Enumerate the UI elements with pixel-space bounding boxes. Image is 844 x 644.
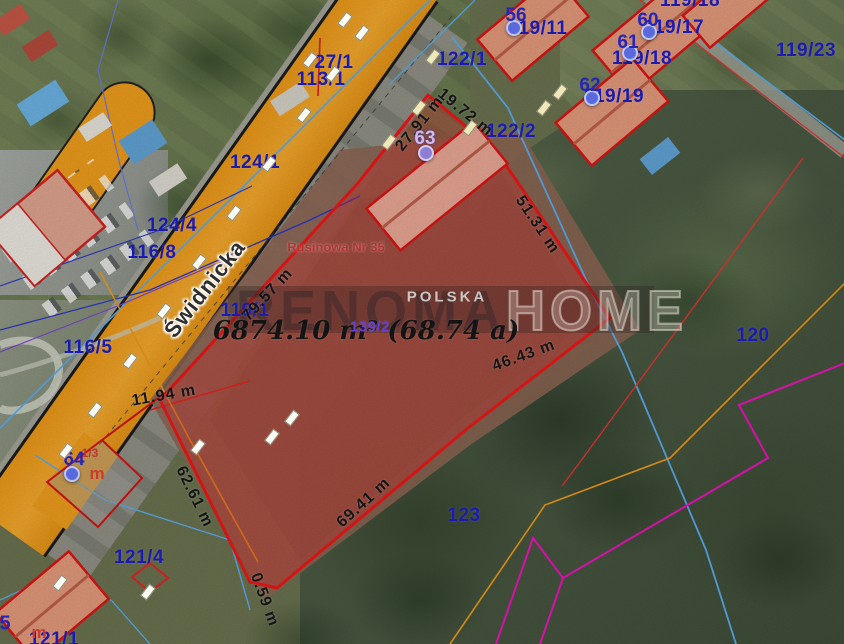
address-number-label: 62 bbox=[579, 75, 600, 97]
street-address-label: Rusinowa Nr 35 bbox=[287, 240, 385, 255]
parcel-number-label: 119/23 bbox=[776, 40, 836, 62]
survey-tag bbox=[354, 25, 370, 42]
parcel-number-label: 123 bbox=[447, 505, 480, 527]
address-number-label: 56 bbox=[505, 5, 526, 27]
parcel-number-label: 119/18 bbox=[660, 0, 720, 12]
edge-measurement-label: 69.41 m bbox=[334, 474, 395, 531]
parcel-number-label: 139/2 bbox=[350, 319, 390, 336]
survey-tag bbox=[226, 205, 242, 222]
survey-tag bbox=[337, 12, 353, 29]
edge-measurement-label: 11.94 m bbox=[131, 382, 198, 411]
parcel-number-label: 124/4 bbox=[147, 215, 197, 237]
labels-layer: Świdnicka Rusinowa Nr 35 POLSKA 6874.10 … bbox=[0, 0, 844, 644]
map-annotation-label: 1/3 bbox=[82, 446, 99, 460]
survey-tag bbox=[552, 84, 568, 101]
survey-tag bbox=[122, 353, 138, 370]
map-annotation-label: 5 bbox=[0, 613, 11, 636]
survey-tag bbox=[536, 100, 552, 117]
edge-measurement-label: 0.59 m bbox=[246, 571, 282, 630]
survey-tag bbox=[52, 575, 68, 592]
map-annotation-label: m bbox=[89, 464, 104, 484]
survey-tag bbox=[284, 410, 300, 427]
parcel-number-label: 116/8 bbox=[128, 242, 177, 264]
edge-measurement-label: 51.31 m bbox=[511, 193, 563, 258]
survey-tag bbox=[87, 402, 103, 419]
map-canvas[interactable]: RENOMAHOME Świdnicka Rusinowa Nr 35 POLS… bbox=[0, 0, 844, 644]
country-watermark-label: POLSKA bbox=[407, 289, 488, 306]
map-annotation-label: m bbox=[31, 623, 46, 643]
parcel-number-label: 120 bbox=[736, 325, 769, 347]
parcel-number-label: 116/5 bbox=[64, 337, 113, 359]
survey-tag bbox=[296, 107, 312, 124]
survey-tag bbox=[140, 584, 156, 601]
edge-measurement-label: 62.61 m bbox=[172, 464, 217, 531]
address-number-label: 63 bbox=[414, 128, 435, 150]
survey-tag bbox=[264, 429, 280, 446]
survey-tag bbox=[190, 439, 206, 456]
address-number-label: 61 bbox=[617, 32, 638, 54]
parcel-number-label: 122/1 bbox=[437, 49, 487, 71]
parcel-number-label: 121/4 bbox=[114, 547, 164, 569]
address-number-label: 60 bbox=[637, 10, 658, 32]
